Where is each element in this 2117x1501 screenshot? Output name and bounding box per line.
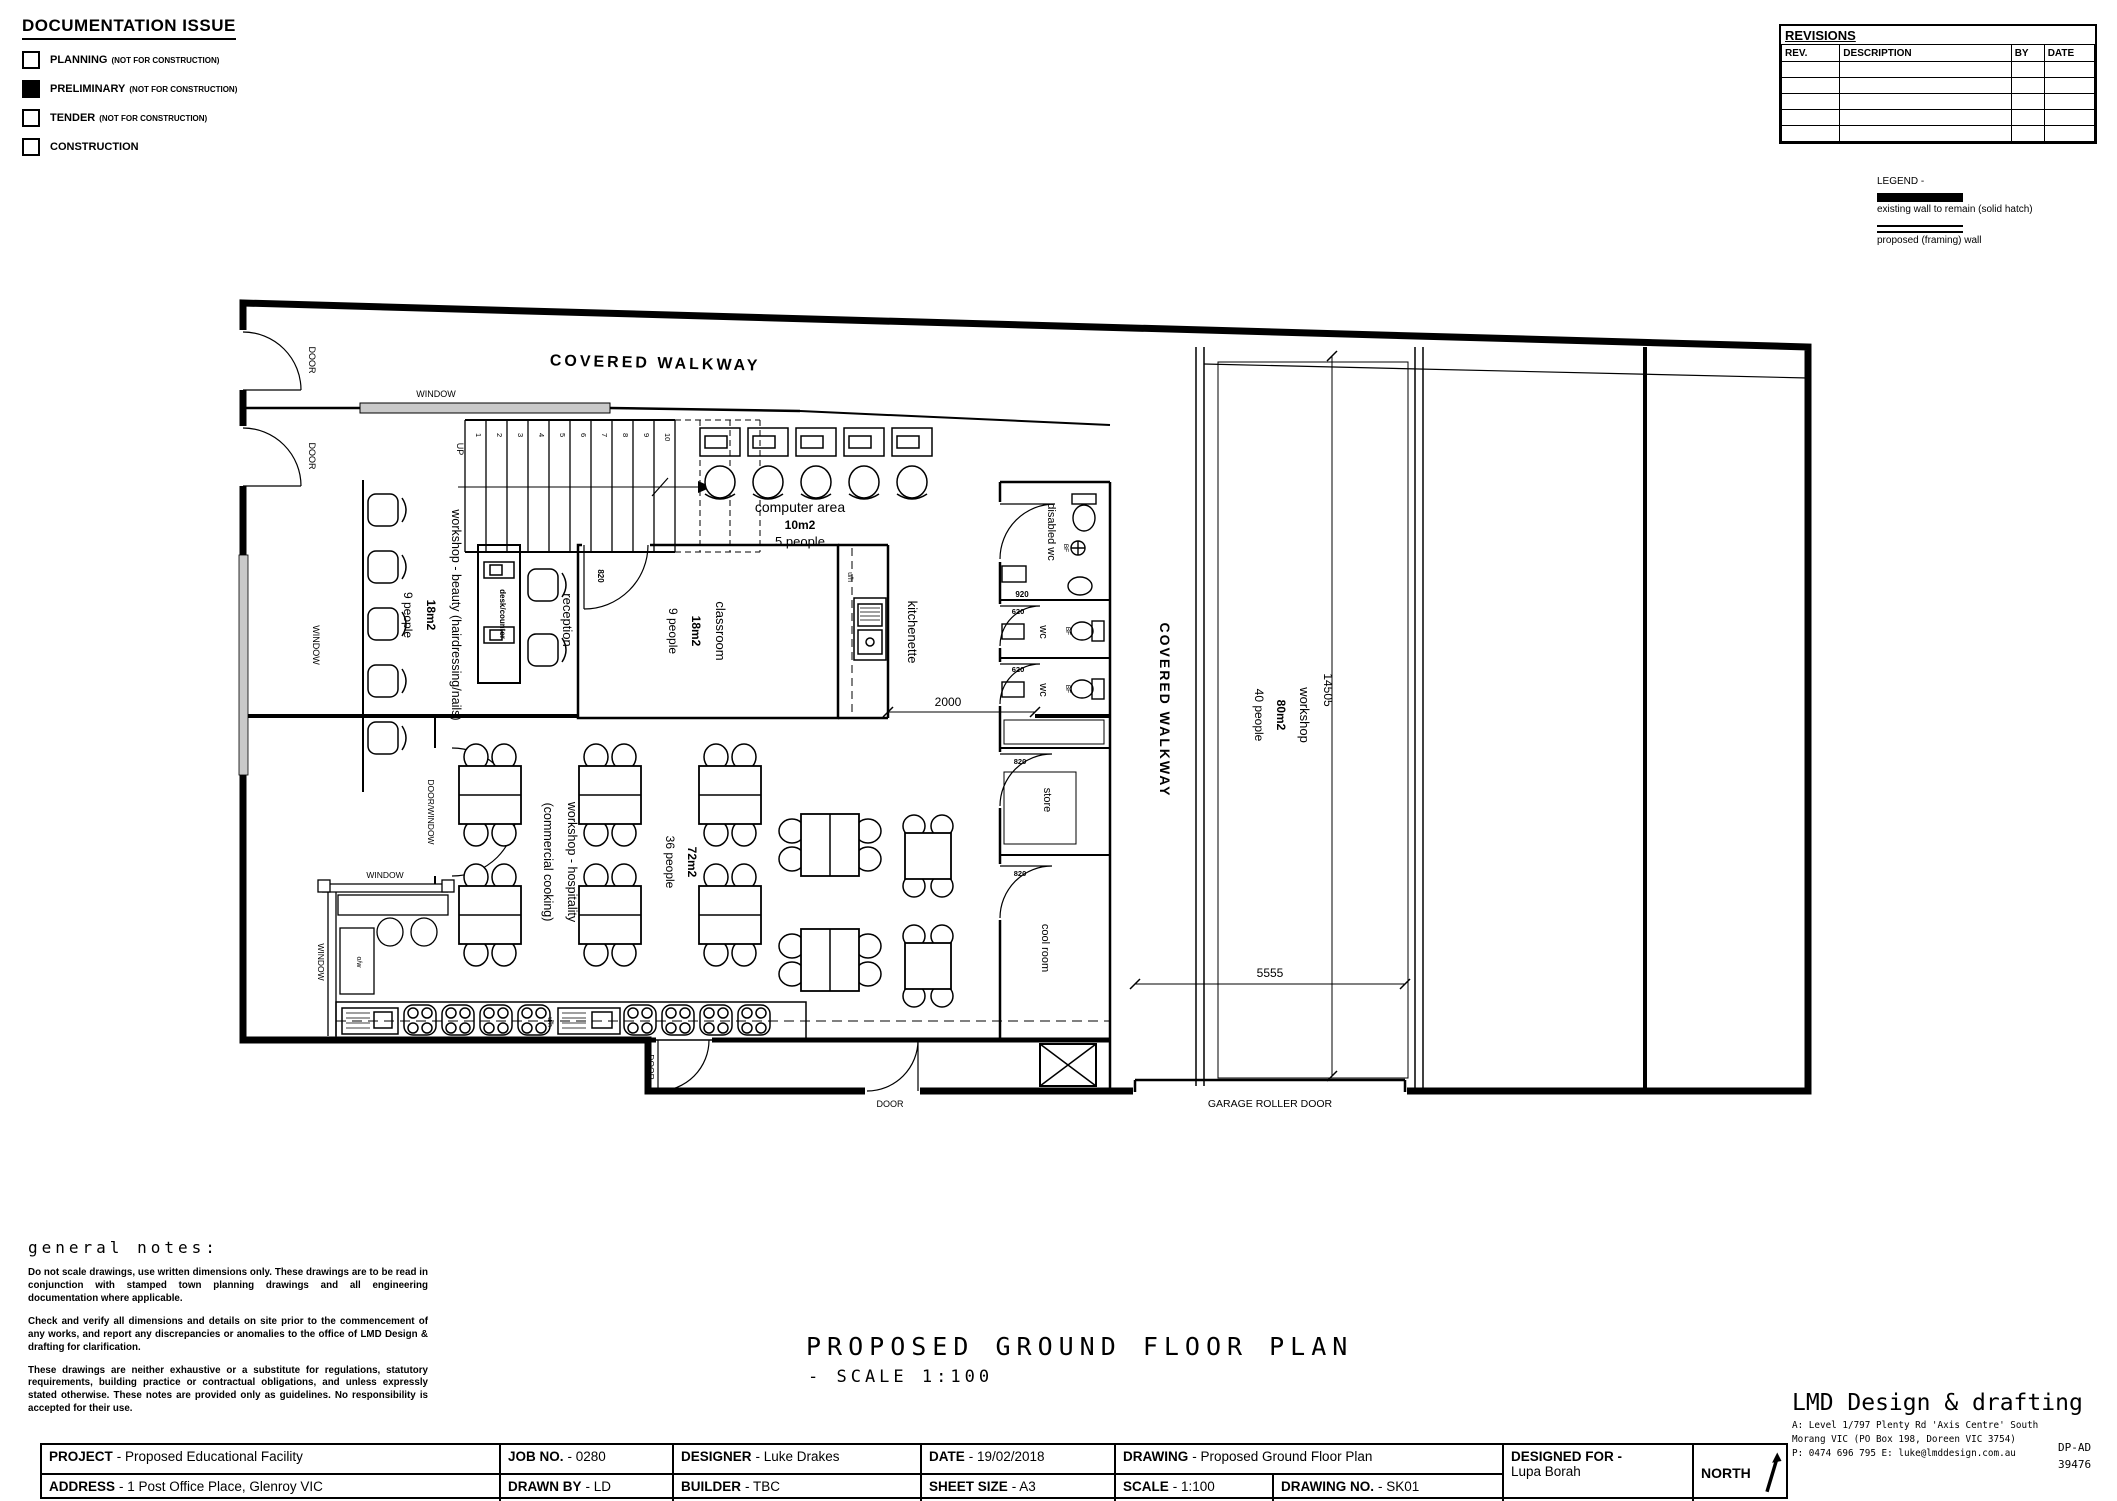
planning-suffix: (NOT FOR CONSTRUCTION) — [111, 56, 219, 65]
stair-number: 10 — [663, 433, 672, 441]
door-820-label: 820 — [1014, 869, 1027, 878]
project-label: PROJECT — [49, 1449, 113, 1464]
doc-issue-row-tender: TENDER (NOT FOR CONSTRUCTION) — [22, 109, 352, 127]
covered-walkway-top-label: COVERED WALKWAY — [550, 352, 761, 374]
classroom-name: classroom — [713, 601, 728, 660]
kitchen-bench — [336, 1002, 1110, 1040]
titleblock-designer: DESIGNER- Luke Drakes — [672, 1445, 920, 1473]
kitchenette-label: kitchenette — [905, 601, 920, 664]
reception-desk — [478, 545, 566, 683]
door-620-label: 620 — [1012, 665, 1025, 674]
legend-existing-label: existing wall to remain (solid hatch) — [1877, 204, 2097, 215]
north-arrow-icon — [1761, 1449, 1783, 1497]
registration-code: DP-AD 39476 — [2058, 1440, 2091, 1473]
stair-number: 1 — [474, 433, 483, 437]
beauty-room-name: workshop - beauty (hairdressing/nails) — [449, 508, 463, 720]
general-notes: general notes: Do not scale drawings, us… — [28, 1238, 428, 1426]
preliminary-label: PRELIMINARY — [50, 83, 125, 95]
kitchenette-fixtures — [852, 548, 886, 714]
workshop-capacity: 40 people — [1252, 689, 1266, 742]
revisions-empty-row — [1782, 94, 2095, 110]
bf-label: BF — [1062, 544, 1069, 552]
beauty-room-capacity: 9 people — [401, 592, 415, 638]
sheet-size-value: - A3 — [1012, 1479, 1036, 1494]
drawn-by-value: - LD — [586, 1479, 612, 1494]
revisions-header-row: REV. DESCRIPTION BY DATE — [1782, 45, 2095, 62]
disabled-wc-label: disabled wc — [1045, 503, 1057, 561]
north-label: NORTH — [1701, 1465, 1751, 1481]
titleblock-designed-for: DESIGNED FOR -Lupa Borah — [1502, 1445, 1692, 1501]
scale-label: SCALE — [1123, 1479, 1169, 1494]
bf-label: BF — [1064, 627, 1071, 635]
drawing-scale-text: - SCALE 1:100 — [806, 1367, 1353, 1387]
general-notes-heading: general notes: — [28, 1238, 428, 1257]
drawing-label: DRAWING — [1123, 1449, 1188, 1464]
window-band — [239, 555, 248, 775]
covered-walkway-side-label: COVERED WALKWAY — [1157, 623, 1173, 798]
drawing-no-value: - SK01 — [1378, 1479, 1419, 1494]
hospitality-size: 72m2 — [685, 847, 699, 878]
project-value: - Proposed Educational Facility — [117, 1449, 303, 1464]
registration-code-line1: DP-AD — [2058, 1440, 2091, 1457]
bf-label: BF — [1064, 685, 1071, 693]
doc-issue-row-preliminary: PRELIMINARY (NOT FOR CONSTRUCTION) — [22, 80, 352, 98]
planning-checkbox[interactable] — [22, 51, 40, 69]
revisions-col-by: BY — [2011, 45, 2044, 62]
door-opening — [237, 426, 249, 486]
drawn-by-label: DRAWN BY — [508, 1479, 582, 1494]
general-notes-p1: Do not scale drawings, use written dimen… — [28, 1267, 428, 1306]
company-address-2: Morang VIC (PO Box 198, Doreen VIC 3754) — [1792, 1433, 2057, 1447]
address-label: ADDRESS — [49, 1479, 115, 1494]
construction-label: CONSTRUCTION — [50, 141, 139, 153]
title-block: PROJECT- Proposed Educational Facility A… — [40, 1443, 1788, 1499]
documentation-issue-panel: DOCUMENTATION ISSUE PLANNING (NOT FOR CO… — [22, 16, 352, 156]
door-opening — [237, 330, 249, 390]
revisions-empty-row — [1782, 110, 2095, 126]
door-820-label: 820 — [596, 569, 605, 583]
desk-counter-label: desk/counter — [498, 589, 507, 639]
stair-number: 6 — [579, 433, 588, 437]
sheet-size-label: SHEET SIZE — [929, 1479, 1008, 1494]
shaft-box — [1040, 1044, 1096, 1086]
construction-checkbox[interactable] — [22, 138, 40, 156]
tender-checkbox[interactable] — [22, 109, 40, 127]
interior-walls — [239, 347, 1808, 1096]
preliminary-checkbox[interactable] — [22, 80, 40, 98]
beauty-salon-chairs — [363, 480, 406, 792]
window-label: WINDOW — [416, 389, 456, 399]
store-label: store — [1041, 788, 1053, 812]
revisions-empty-row — [1782, 62, 2095, 78]
tender-suffix: (NOT FOR CONSTRUCTION) — [99, 114, 207, 123]
cool-room-label: cool room — [1039, 924, 1051, 972]
computer-area-name: computer area — [755, 499, 845, 515]
titleblock-project: PROJECT- Proposed Educational Facility — [42, 1445, 499, 1473]
doc-issue-row-planning: PLANNING (NOT FOR CONSTRUCTION) — [22, 51, 352, 69]
window-label: WINDOW — [311, 625, 321, 665]
titleblock-date: DATE- 19/02/2018 — [920, 1445, 1114, 1473]
job-no-value: - 0280 — [568, 1449, 606, 1464]
dim-5555: 5555 — [1257, 966, 1284, 980]
revisions-col-rev: REV. — [1782, 45, 1840, 62]
general-notes-p2: Check and verify all dimensions and deta… — [28, 1316, 428, 1355]
uh-label: u/h — [846, 572, 853, 582]
stair-number: 5 — [558, 433, 567, 437]
outer-walls — [237, 303, 1808, 1097]
legend-proposed-label: proposed (framing) wall — [1877, 235, 2097, 246]
preliminary-suffix: (NOT FOR CONSTRUCTION) — [129, 85, 237, 94]
hospitality-name: workshop - hospitality — [565, 801, 579, 923]
workshop-size: 80m2 — [1274, 700, 1288, 731]
stair-number: 9 — [642, 433, 651, 437]
dim-2000: 2000 — [935, 695, 962, 709]
legend-title: LEGEND - — [1877, 176, 2097, 187]
general-notes-p3: These drawings are neither exhaustive or… — [28, 1365, 428, 1417]
beauty-room-size: 18m2 — [424, 600, 438, 631]
stair-number: 7 — [600, 433, 609, 437]
ow-label: o/w — [355, 957, 362, 969]
doc-issue-row-construction: CONSTRUCTION — [22, 138, 352, 156]
uh-label: u/h — [546, 1017, 553, 1027]
designed-for-value: Lupa Borah — [1511, 1464, 1581, 1479]
tender-label: TENDER — [50, 112, 95, 124]
designer-value: - Luke Drakes — [756, 1449, 840, 1464]
dimensions — [883, 351, 1410, 1081]
door-920-label: 920 — [1015, 590, 1029, 599]
drawing-title: PROPOSED GROUND FLOOR PLAN - SCALE 1:100 — [806, 1332, 1353, 1387]
address-value: - 1 Post Office Place, Glenroy VIC — [119, 1479, 323, 1494]
planning-label: PLANNING — [50, 54, 107, 66]
revisions-col-description: DESCRIPTION — [1840, 45, 2011, 62]
computer-area-size: 10m2 — [785, 518, 816, 532]
job-no-label: JOB NO. — [508, 1449, 564, 1464]
wc-label: wc — [1037, 624, 1049, 639]
stair-number: 4 — [537, 433, 546, 437]
door-label: DOOR — [307, 443, 317, 471]
window-label: WINDOW — [316, 943, 326, 980]
drawing-value: - Proposed Ground Floor Plan — [1192, 1449, 1372, 1464]
dim-14505: 14505 — [1321, 673, 1335, 707]
reception-label: reception — [560, 593, 575, 646]
computer-area-capacity: 5 people — [775, 534, 825, 549]
documentation-issue-title: DOCUMENTATION ISSUE — [22, 16, 236, 40]
existing-wall-swatch — [1877, 193, 1963, 202]
classroom-size: 18m2 — [689, 616, 703, 647]
revisions-empty-row — [1782, 78, 2095, 94]
wc-label: wc — [1037, 682, 1049, 697]
titleblock-drawing: DRAWING- Proposed Ground Floor Plan — [1114, 1445, 1502, 1473]
classroom-capacity: 9 people — [666, 608, 680, 654]
door-label: DOOR — [877, 1099, 905, 1109]
titleblock-north: NORTH — [1692, 1445, 1790, 1501]
designed-for-label: DESIGNED FOR - — [1511, 1449, 1622, 1464]
legend-panel: LEGEND - existing wall to remain (solid … — [1877, 176, 2097, 246]
revisions-table: REVISIONS REV. DESCRIPTION BY DATE — [1779, 24, 2097, 144]
titleblock-job-no: JOB NO.- 0280 — [499, 1445, 672, 1473]
door-620-label: 620 — [1012, 607, 1025, 616]
company-address-1: A: Level 1/797 Plenty Rd 'Axis Centre' S… — [1792, 1419, 2057, 1433]
door-label: DOOR — [646, 1054, 656, 1080]
revisions-empty-row — [1782, 126, 2095, 142]
window-label: WINDOW — [366, 870, 403, 880]
drawing-no-label: DRAWING NO. — [1281, 1479, 1374, 1494]
hospitality-name2: (commercial cooking) — [541, 803, 555, 922]
date-value: - 19/02/2018 — [969, 1449, 1045, 1464]
hospitality-capacity: 36 people — [663, 836, 677, 889]
drawing-title-text: PROPOSED GROUND FLOOR PLAN — [806, 1332, 1353, 1361]
stair-number: 8 — [621, 433, 630, 437]
designer-label: DESIGNER — [681, 1449, 752, 1464]
revisions-col-date: DATE — [2044, 45, 2094, 62]
computer-stations — [700, 428, 932, 499]
builder-label: BUILDER — [681, 1479, 741, 1494]
builder-value: - TBC — [745, 1479, 780, 1494]
door-820-label: 820 — [1014, 757, 1027, 766]
stair-number: 2 — [495, 433, 504, 437]
stair-up-label: UP — [455, 443, 465, 456]
door-window-label: DOOR/WINDOW — [426, 779, 436, 844]
garage-roller-door-label: GARAGE ROLLER DOOR — [1208, 1098, 1333, 1110]
hospitality-tables — [459, 744, 953, 1007]
stair-number: 3 — [516, 433, 525, 437]
company-contact: P: 0474 696 795 E: luke@lmddesign.com.au — [1792, 1447, 2057, 1461]
scale-value: - 1:100 — [1173, 1479, 1215, 1494]
window-band — [360, 403, 610, 413]
workshop-name: workshop — [1297, 686, 1312, 743]
date-label: DATE — [929, 1449, 965, 1464]
corner-bench — [338, 895, 448, 994]
registration-code-line2: 39476 — [2058, 1457, 2091, 1474]
door-label: DOOR — [307, 347, 317, 375]
revisions-title: REVISIONS — [1781, 26, 2095, 44]
company-name: LMD Design & drafting — [1792, 1390, 2117, 1416]
proposed-wall-swatch — [1877, 225, 1963, 233]
